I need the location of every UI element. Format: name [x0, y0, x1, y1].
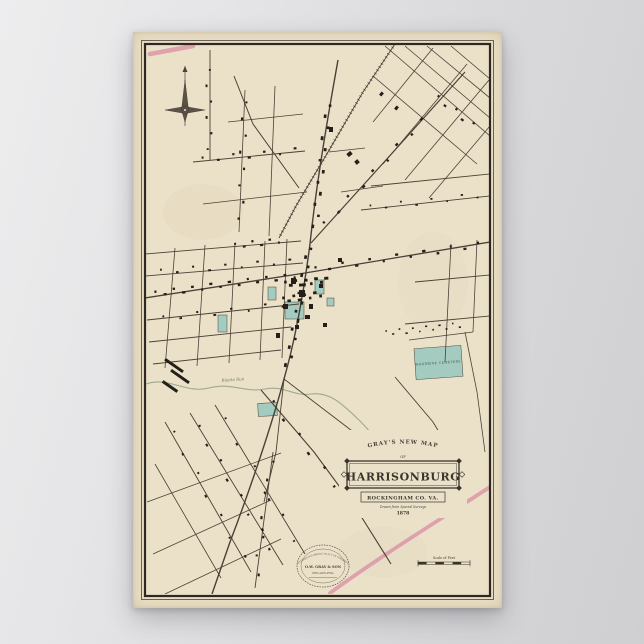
building [273, 263, 275, 265]
building [321, 136, 324, 140]
building [243, 245, 246, 247]
building [425, 325, 427, 327]
building [400, 201, 402, 203]
building [309, 296, 312, 299]
building [248, 156, 251, 158]
street [409, 332, 473, 340]
building [268, 548, 271, 551]
building [207, 148, 209, 150]
building [272, 400, 275, 403]
building [289, 284, 293, 287]
building [430, 198, 432, 200]
railroad-ties [279, 44, 395, 238]
emblem-name: O.W. GRAY & SON [305, 565, 342, 569]
building [172, 287, 175, 290]
street [215, 405, 305, 554]
building [202, 156, 204, 158]
building [287, 299, 291, 302]
street [165, 422, 251, 572]
building [160, 269, 162, 271]
building [290, 355, 293, 358]
building [176, 271, 179, 273]
building [260, 244, 263, 247]
building [392, 333, 394, 335]
street [153, 500, 271, 554]
green-block [327, 298, 334, 306]
street [145, 273, 305, 298]
building [316, 181, 319, 184]
publisher-emblem: ENTERED ACCORDING TO ACT OF CONGRESS O.W… [297, 545, 350, 587]
building [311, 224, 314, 228]
building [294, 147, 297, 149]
building [395, 253, 398, 256]
building [213, 314, 216, 316]
building [217, 159, 220, 161]
building [288, 259, 291, 261]
building [205, 443, 208, 447]
pink-road [150, 46, 193, 54]
scale-bar-label: Scale of Feet [433, 556, 456, 560]
street [147, 453, 281, 502]
building [460, 118, 464, 122]
building [179, 317, 182, 319]
building [234, 243, 236, 245]
building [268, 498, 270, 500]
building [245, 101, 247, 103]
building [313, 291, 317, 294]
street [371, 174, 490, 186]
building [329, 127, 333, 132]
building [263, 151, 266, 153]
building [305, 315, 310, 319]
building [265, 276, 268, 279]
building [182, 291, 186, 294]
building [247, 513, 250, 516]
building [220, 513, 223, 516]
vintage-map-poster: Blacks Run WOODBINE CEMETERY [133, 32, 502, 608]
building [319, 159, 322, 162]
street [165, 539, 281, 594]
building [383, 260, 385, 263]
map-subtitle: ROCKINGHAM CO. VA. [367, 495, 439, 501]
building [241, 117, 243, 120]
building [341, 261, 344, 264]
building [293, 540, 296, 543]
building [261, 528, 264, 532]
building [320, 281, 323, 284]
building [256, 261, 259, 263]
building [232, 153, 234, 155]
building [329, 104, 332, 107]
street [361, 196, 490, 210]
building [251, 240, 253, 242]
building [209, 69, 211, 71]
building [362, 185, 366, 189]
building [243, 168, 245, 171]
building [412, 327, 414, 329]
building [237, 217, 239, 219]
building [219, 285, 222, 288]
building [162, 380, 178, 393]
building [322, 170, 325, 174]
building [446, 328, 448, 330]
building [288, 345, 291, 349]
building [210, 100, 212, 102]
building [322, 221, 325, 224]
street [429, 126, 490, 198]
building [292, 294, 295, 297]
building [446, 200, 448, 202]
building [238, 284, 241, 287]
building [459, 326, 461, 328]
building [394, 106, 399, 111]
building [208, 269, 211, 271]
building [452, 323, 454, 325]
street [405, 80, 489, 180]
building [282, 306, 284, 308]
building [324, 277, 328, 280]
street [269, 86, 275, 236]
building [477, 242, 480, 245]
building [368, 258, 371, 261]
building [385, 207, 388, 209]
building [245, 134, 247, 136]
building [294, 338, 297, 341]
building [303, 293, 307, 296]
building [282, 418, 286, 422]
building [298, 432, 301, 435]
building [472, 122, 475, 125]
building [319, 192, 322, 196]
building [307, 265, 310, 268]
building [239, 150, 241, 153]
building [346, 195, 349, 198]
building [399, 328, 401, 330]
product-backdrop: Blacks Run WOODBINE CEMETERY [0, 0, 644, 644]
street [229, 243, 235, 363]
paper-stains [163, 184, 468, 577]
street [383, 64, 467, 164]
building [256, 281, 259, 284]
street [165, 248, 175, 368]
map-note: Drawn from Special Surveys [379, 505, 427, 509]
building [191, 285, 194, 288]
creek-label: Blacks Run [220, 376, 244, 383]
building [266, 478, 269, 481]
building [276, 333, 280, 338]
building [298, 298, 302, 301]
building [371, 169, 375, 173]
railroad [279, 44, 395, 238]
building [314, 266, 316, 269]
street [473, 240, 477, 332]
building [268, 238, 271, 240]
building [163, 293, 166, 296]
building [319, 284, 323, 288]
building [224, 264, 226, 266]
building [284, 281, 287, 284]
street [255, 452, 273, 588]
building [284, 363, 287, 367]
building [409, 255, 412, 258]
building [209, 283, 212, 286]
building [333, 485, 336, 488]
building [240, 494, 243, 497]
railroad-layer [279, 44, 395, 238]
building [274, 279, 278, 282]
building [309, 304, 313, 309]
building [196, 311, 198, 313]
building [299, 283, 303, 286]
building [256, 554, 258, 556]
street [405, 46, 490, 118]
building [262, 536, 264, 539]
building [162, 315, 164, 317]
map-title: HARRISONBURG [346, 471, 461, 484]
building [317, 214, 320, 217]
building [419, 331, 421, 333]
street [153, 350, 281, 364]
building [257, 573, 260, 576]
street [373, 48, 433, 122]
street [145, 241, 301, 254]
building [307, 452, 311, 456]
building [354, 159, 360, 165]
building [238, 184, 240, 186]
building [328, 268, 331, 271]
building [405, 332, 407, 334]
building [432, 329, 434, 331]
building [224, 417, 227, 420]
street [228, 114, 303, 122]
building [283, 304, 288, 309]
building [173, 430, 176, 433]
street [190, 413, 283, 565]
building [295, 325, 299, 329]
building [438, 324, 440, 326]
building [278, 241, 280, 243]
building [461, 194, 464, 196]
building [279, 153, 281, 155]
building [313, 203, 316, 206]
building [294, 310, 297, 313]
building [282, 296, 285, 299]
street [155, 464, 221, 578]
cartouche-of-text: OF [400, 455, 406, 459]
building [304, 255, 307, 259]
building [242, 201, 244, 204]
green-block [268, 287, 276, 300]
building [296, 319, 299, 323]
building [228, 281, 232, 284]
building [210, 132, 212, 134]
street [260, 241, 265, 360]
building [264, 303, 267, 305]
compass-rose-icon [165, 66, 205, 126]
building [304, 279, 308, 282]
building [291, 327, 294, 331]
building [319, 295, 322, 298]
street [329, 148, 365, 152]
building [323, 323, 327, 327]
building [314, 277, 318, 280]
building [309, 247, 312, 250]
building [241, 266, 243, 268]
building [247, 278, 249, 281]
street [145, 263, 303, 276]
building [197, 472, 200, 475]
building [192, 266, 194, 268]
building [206, 116, 208, 119]
street [451, 46, 490, 79]
building [370, 205, 372, 207]
building [253, 465, 256, 468]
building [294, 279, 297, 282]
building [450, 245, 452, 248]
street [465, 332, 485, 452]
building [293, 276, 295, 279]
building [355, 264, 359, 267]
green-block [218, 315, 227, 332]
building [443, 104, 447, 107]
building [248, 310, 250, 312]
building [283, 274, 286, 277]
building [260, 516, 263, 519]
map-canvas: Blacks Run WOODBINE CEMETERY [133, 32, 502, 608]
building [310, 282, 313, 285]
building [415, 204, 418, 206]
building [272, 461, 274, 463]
building [346, 151, 352, 157]
building [297, 292, 300, 295]
building [225, 478, 228, 482]
map-year: 1878 [397, 511, 410, 517]
building [477, 197, 479, 199]
building [436, 252, 439, 255]
building [385, 330, 387, 332]
street [197, 245, 205, 366]
building [230, 308, 233, 310]
building [324, 114, 327, 118]
building [379, 92, 384, 97]
building [338, 258, 342, 262]
building [422, 250, 426, 253]
building [205, 84, 207, 87]
emblem-bottom-text: PHILADELPHIA [312, 571, 333, 575]
building [201, 288, 203, 291]
building [463, 247, 466, 250]
building [154, 290, 156, 293]
building [327, 126, 330, 129]
street [234, 76, 299, 188]
title-cartouche: GRAY'S NEW MAP OF HARRISONBURG ROCKINGHA… [339, 430, 467, 518]
building [324, 148, 327, 151]
